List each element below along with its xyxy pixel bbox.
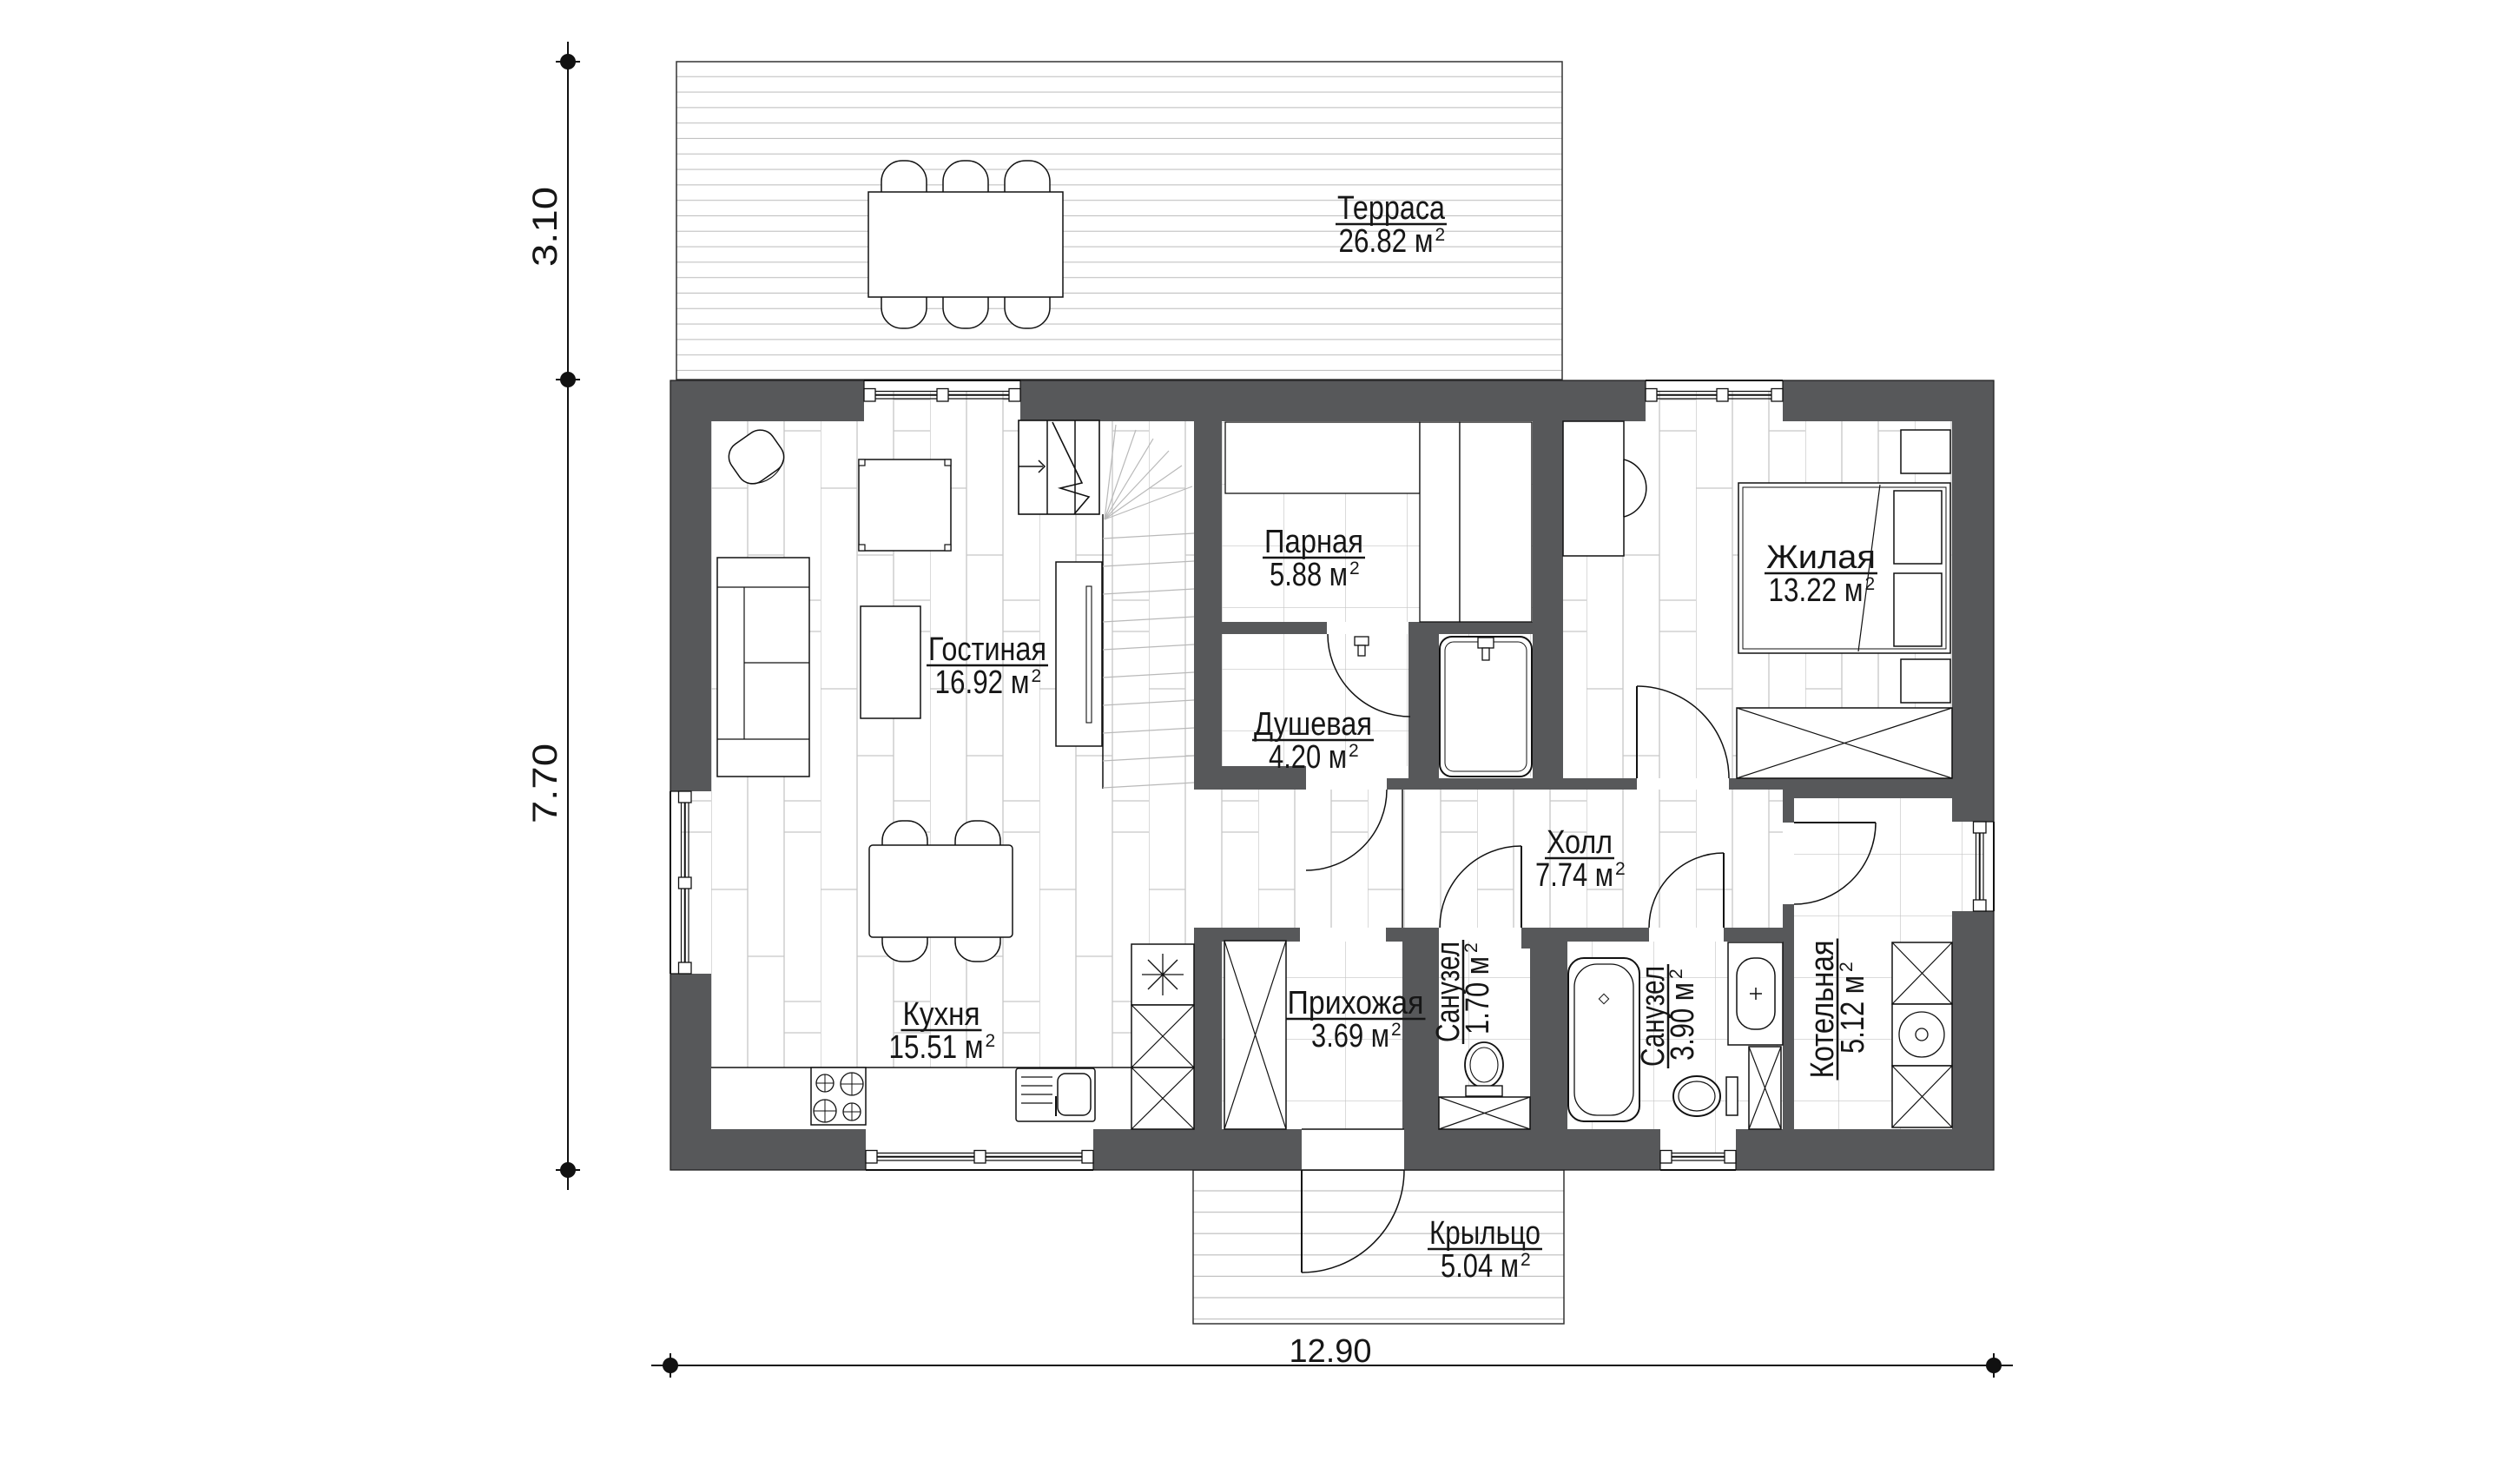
svg-text:Жилая: Жилая — [1766, 539, 1876, 576]
svg-text:3.90 м: 3.90 м — [1665, 982, 1701, 1061]
svg-text:2: 2 — [1666, 968, 1686, 979]
svg-text:15.51 м: 15.51 м — [889, 1029, 984, 1066]
svg-text:2: 2 — [1032, 666, 1042, 686]
svg-text:16.92 м: 16.92 м — [935, 664, 1030, 701]
svg-text:2: 2 — [1435, 225, 1446, 245]
svg-text:7.74 м: 7.74 м — [1535, 857, 1613, 894]
svg-text:3.10: 3.10 — [526, 187, 564, 267]
svg-text:4.20 м: 4.20 м — [1269, 739, 1347, 776]
svg-text:Гостиная: Гостиная — [928, 631, 1046, 668]
svg-text:2: 2 — [1865, 574, 1876, 594]
svg-text:5.88 м: 5.88 м — [1270, 557, 1348, 593]
svg-text:2: 2 — [1837, 962, 1857, 972]
svg-text:12.90: 12.90 — [1289, 1333, 1371, 1370]
svg-text:2: 2 — [1349, 741, 1359, 761]
svg-text:2: 2 — [1391, 1020, 1402, 1040]
svg-text:5.12 м: 5.12 м — [1835, 975, 1871, 1054]
svg-text:26.82 м: 26.82 м — [1339, 223, 1434, 260]
svg-text:Прихожая: Прихожая — [1288, 985, 1424, 1021]
svg-text:Крыльцо: Крыльцо — [1429, 1215, 1540, 1252]
svg-text:7.70: 7.70 — [526, 744, 564, 823]
svg-text:13.22 м: 13.22 м — [1769, 572, 1864, 609]
svg-text:3.69 м: 3.69 м — [1311, 1018, 1389, 1054]
svg-text:2: 2 — [986, 1031, 996, 1051]
svg-text:Душевая: Душевая — [1254, 706, 1372, 743]
svg-text:2: 2 — [1615, 859, 1626, 879]
svg-text:Холл: Холл — [1547, 824, 1613, 861]
svg-text:5.04 м: 5.04 м — [1441, 1248, 1519, 1285]
svg-text:1.70 м: 1.70 м — [1460, 956, 1496, 1034]
svg-text:Парная: Парная — [1264, 524, 1363, 560]
svg-text:2: 2 — [1461, 942, 1481, 953]
svg-text:2: 2 — [1521, 1250, 1531, 1270]
svg-text:2: 2 — [1349, 559, 1360, 578]
svg-text:Кухня: Кухня — [903, 996, 980, 1033]
svg-text:Терраса: Терраса — [1337, 190, 1446, 227]
